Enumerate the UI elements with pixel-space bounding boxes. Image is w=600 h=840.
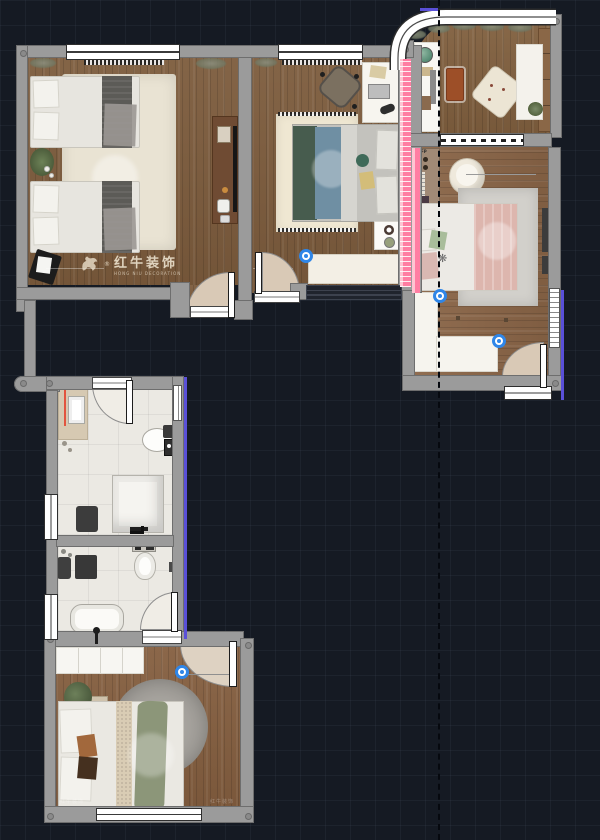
door-marker-bedroom2[interactable]: [299, 249, 313, 263]
laptop-icon: [368, 84, 390, 99]
cup-icon: [44, 166, 50, 172]
pink-accent-wall-bedroom3: [412, 148, 420, 293]
purple-highlight-bath: [184, 377, 187, 639]
desk-paper: [369, 65, 387, 79]
counter-dot: [61, 549, 66, 554]
bedroom4-door-leaf[interactable]: [229, 641, 237, 687]
study-opening-track: [440, 134, 524, 146]
bedroom3-door-leaf[interactable]: [540, 344, 547, 388]
chair-wheel: [352, 104, 357, 109]
registered-mark: ®: [104, 261, 110, 268]
fixture-dot: [167, 444, 171, 448]
knob-icon: [222, 187, 228, 193]
wall-door-nook: [170, 282, 190, 318]
bath-left-window: [44, 494, 58, 540]
chair-wheel: [354, 74, 359, 79]
ottoman-button: [490, 84, 493, 87]
bed3-highlight: [478, 222, 516, 260]
bedroom1-door-leaf[interactable]: [228, 272, 235, 318]
ottoman-button: [488, 98, 491, 101]
radiator-window: [549, 288, 560, 348]
bedroom4-left-wall: [44, 631, 56, 823]
bed-pillow: [33, 217, 60, 246]
purple-highlight-right: [561, 290, 564, 400]
knob-icon: [423, 165, 428, 170]
closet-row: [56, 647, 144, 674]
corner-marker-bedroom3-desk[interactable]: [433, 289, 447, 303]
plant-icon: [196, 58, 226, 69]
bed-pillow: [33, 185, 60, 214]
corner-marker-bedroom3-desk2[interactable]: [492, 334, 506, 348]
curtain-strip: [84, 60, 164, 65]
decor-ring: [384, 225, 394, 235]
wall-vestibule: [234, 300, 253, 320]
door-pivot-mark: [141, 526, 144, 534]
chair-dark: [57, 557, 71, 579]
cup-icon: [49, 173, 54, 178]
pink-accent-wall-bedroom2: [400, 59, 411, 287]
bath-door-leaf[interactable]: [126, 380, 133, 424]
ottoman-button: [502, 88, 505, 91]
purple-highlight-top: [420, 8, 438, 11]
tray-papers: [36, 256, 52, 274]
bedroom2-low-window: [306, 285, 402, 300]
brand-logo-icon: [80, 255, 100, 274]
knob-icon: [423, 157, 428, 162]
bedroom2-window: [278, 44, 363, 60]
bed-throw-gray: [103, 207, 136, 250]
tv-panel: [233, 126, 237, 212]
bed-pillow: [33, 80, 60, 109]
cushion-round-teal: [356, 154, 369, 167]
toilet-bowl: [134, 552, 156, 580]
door-marker-bedroom4[interactable]: [175, 665, 189, 679]
chair-cushion: [456, 164, 478, 186]
wall-left-bedroom1: [16, 45, 28, 312]
l-desk-horizontal: [436, 336, 498, 372]
wall-bedroom1-bedroom2: [238, 57, 252, 302]
bath-left-window2: [44, 594, 58, 640]
photo-frame: [217, 126, 231, 143]
tv-bench: [308, 254, 401, 284]
bed4-highlight: [128, 733, 174, 777]
wall-bottom-bedroom1: [16, 287, 172, 300]
toiletry-dot: [62, 441, 67, 446]
tub-faucet-stem: [95, 633, 98, 644]
cushion-yellow: [359, 171, 375, 190]
desk-dark: [75, 555, 97, 579]
kettle-icon: [217, 199, 230, 213]
wall-screw: [245, 813, 252, 820]
plant-icon: [30, 58, 56, 68]
bedroom4-door-threshold: [142, 630, 182, 644]
cup-icon: [220, 215, 230, 223]
red-accent-line: [64, 388, 66, 426]
pillow-brown: [77, 734, 98, 758]
l-desk-vertical: [412, 292, 438, 372]
pillow-darkbrown: [77, 756, 98, 780]
bedroom4-window: [96, 808, 202, 821]
chair-wheel: [320, 72, 325, 77]
sink: [68, 396, 85, 424]
wall-screw: [46, 380, 53, 387]
wall-screw: [47, 813, 54, 820]
plant-icon: [528, 102, 543, 116]
floor-dot: [504, 318, 508, 322]
wall-screw: [245, 642, 252, 649]
bed-pillow: [375, 130, 398, 171]
floor-lamp-arm: [466, 174, 536, 175]
corner-watermark-right: 红牛装饰: [210, 798, 234, 805]
bed-pillow: [33, 112, 60, 141]
bed-pillow: [375, 176, 398, 215]
bedroom4-right-wall: [240, 638, 254, 823]
bath-exit-door-leaf[interactable]: [171, 592, 178, 632]
balcony-window-curved: [386, 0, 564, 72]
bedroom2-door-leaf[interactable]: [255, 252, 262, 294]
reference-dashed-line: [438, 0, 440, 840]
bed-throw-gray: [103, 103, 136, 146]
bedroom1-window: [66, 44, 180, 60]
coffee-table: [446, 68, 464, 101]
floor-dot: [456, 316, 460, 320]
stool-dark: [76, 506, 98, 532]
toiletry-dot: [68, 448, 72, 452]
plant-icon: [30, 148, 54, 176]
bedroom3-door-window: [504, 386, 552, 400]
wall-bedroom3-left: [402, 290, 415, 385]
wall-screw: [552, 380, 559, 387]
wall-screw: [20, 50, 27, 57]
curtain-strip: [282, 60, 362, 65]
brand-watermark: ® 红牛装饰 HONG NIU DECORATION: [80, 252, 181, 276]
rug-fringe: [278, 228, 356, 232]
bed-duvet-fold: [341, 125, 357, 221]
brand-watermark-text: 红牛装饰: [114, 252, 181, 271]
decor-cup: [384, 237, 395, 248]
bath-hatch: [173, 385, 182, 421]
floorplan-canvas: ® 红牛装饰 HONG NIU DECORATION: [0, 0, 600, 840]
wall-connector-vertical: [24, 300, 36, 380]
shower-base: [112, 475, 164, 533]
bath-mid-wall: [56, 535, 174, 547]
plant-icon: [255, 58, 277, 67]
rug-fringe: [278, 112, 356, 116]
brand-watermark-subtitle: HONG NIU DECORATION: [114, 271, 181, 276]
corner-watermark-left: 红牛装饰: [60, 798, 84, 805]
wall-screw: [20, 380, 27, 387]
